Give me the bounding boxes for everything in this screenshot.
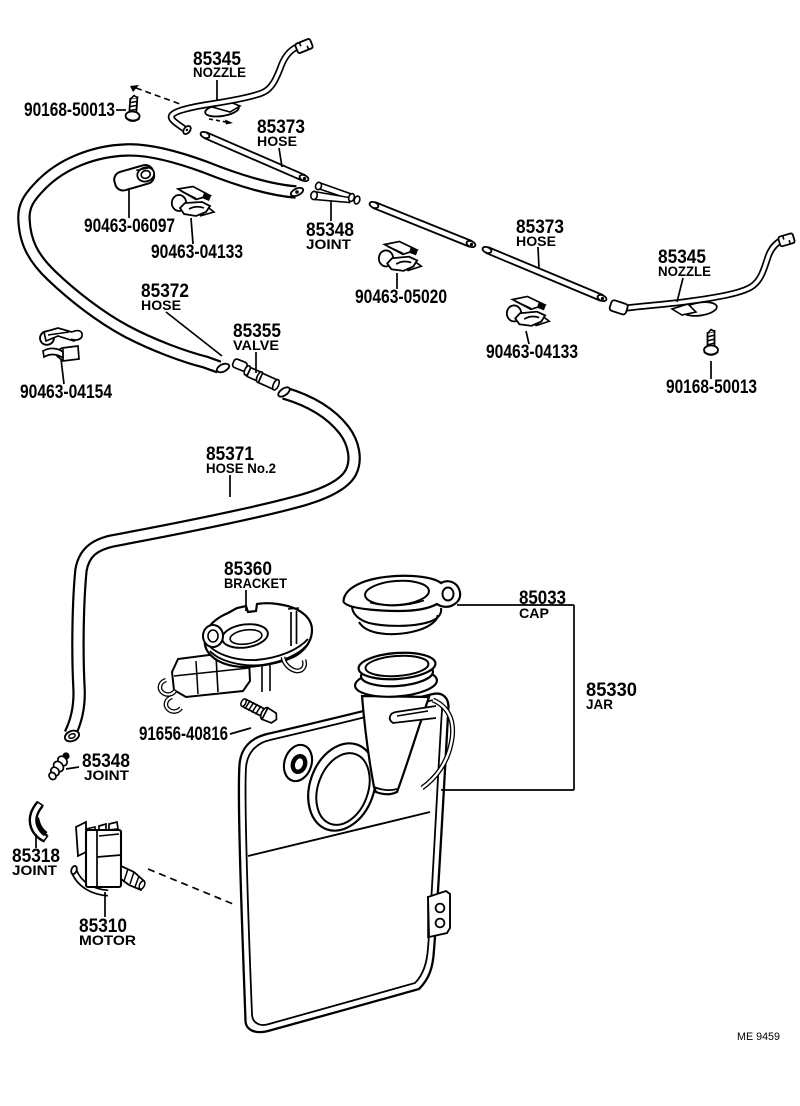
svg-text:JOINT: JOINT [12,862,57,878]
svg-text:JAR: JAR [586,696,613,712]
svg-text:HOSE No.2: HOSE No.2 [206,460,276,476]
svg-text:HOSE: HOSE [257,133,297,149]
svg-text:MOTOR: MOTOR [79,932,136,948]
svg-text:NOZZLE: NOZZLE [658,263,711,279]
svg-text:90463-06097: 90463-06097 [84,216,175,237]
svg-text:CAP: CAP [519,605,549,621]
svg-text:HOSE: HOSE [516,233,556,249]
svg-text:90463-04133: 90463-04133 [151,242,243,263]
svg-text:90168-50013: 90168-50013 [24,100,115,121]
svg-text:90168-50013: 90168-50013 [666,377,757,398]
svg-text:JOINT: JOINT [84,767,129,783]
svg-text:BRACKET: BRACKET [224,575,287,591]
svg-text:JOINT: JOINT [306,236,351,252]
svg-text:90463-04154: 90463-04154 [20,382,112,403]
svg-text:90463-04133: 90463-04133 [486,342,578,363]
svg-text:HOSE: HOSE [141,297,181,313]
svg-text:ME 9459: ME 9459 [737,1031,780,1043]
svg-text:91656-40816: 91656-40816 [139,724,228,745]
svg-text:90463-05020: 90463-05020 [355,287,447,308]
svg-text:NOZZLE: NOZZLE [193,64,246,80]
svg-text:VALVE: VALVE [233,337,279,353]
